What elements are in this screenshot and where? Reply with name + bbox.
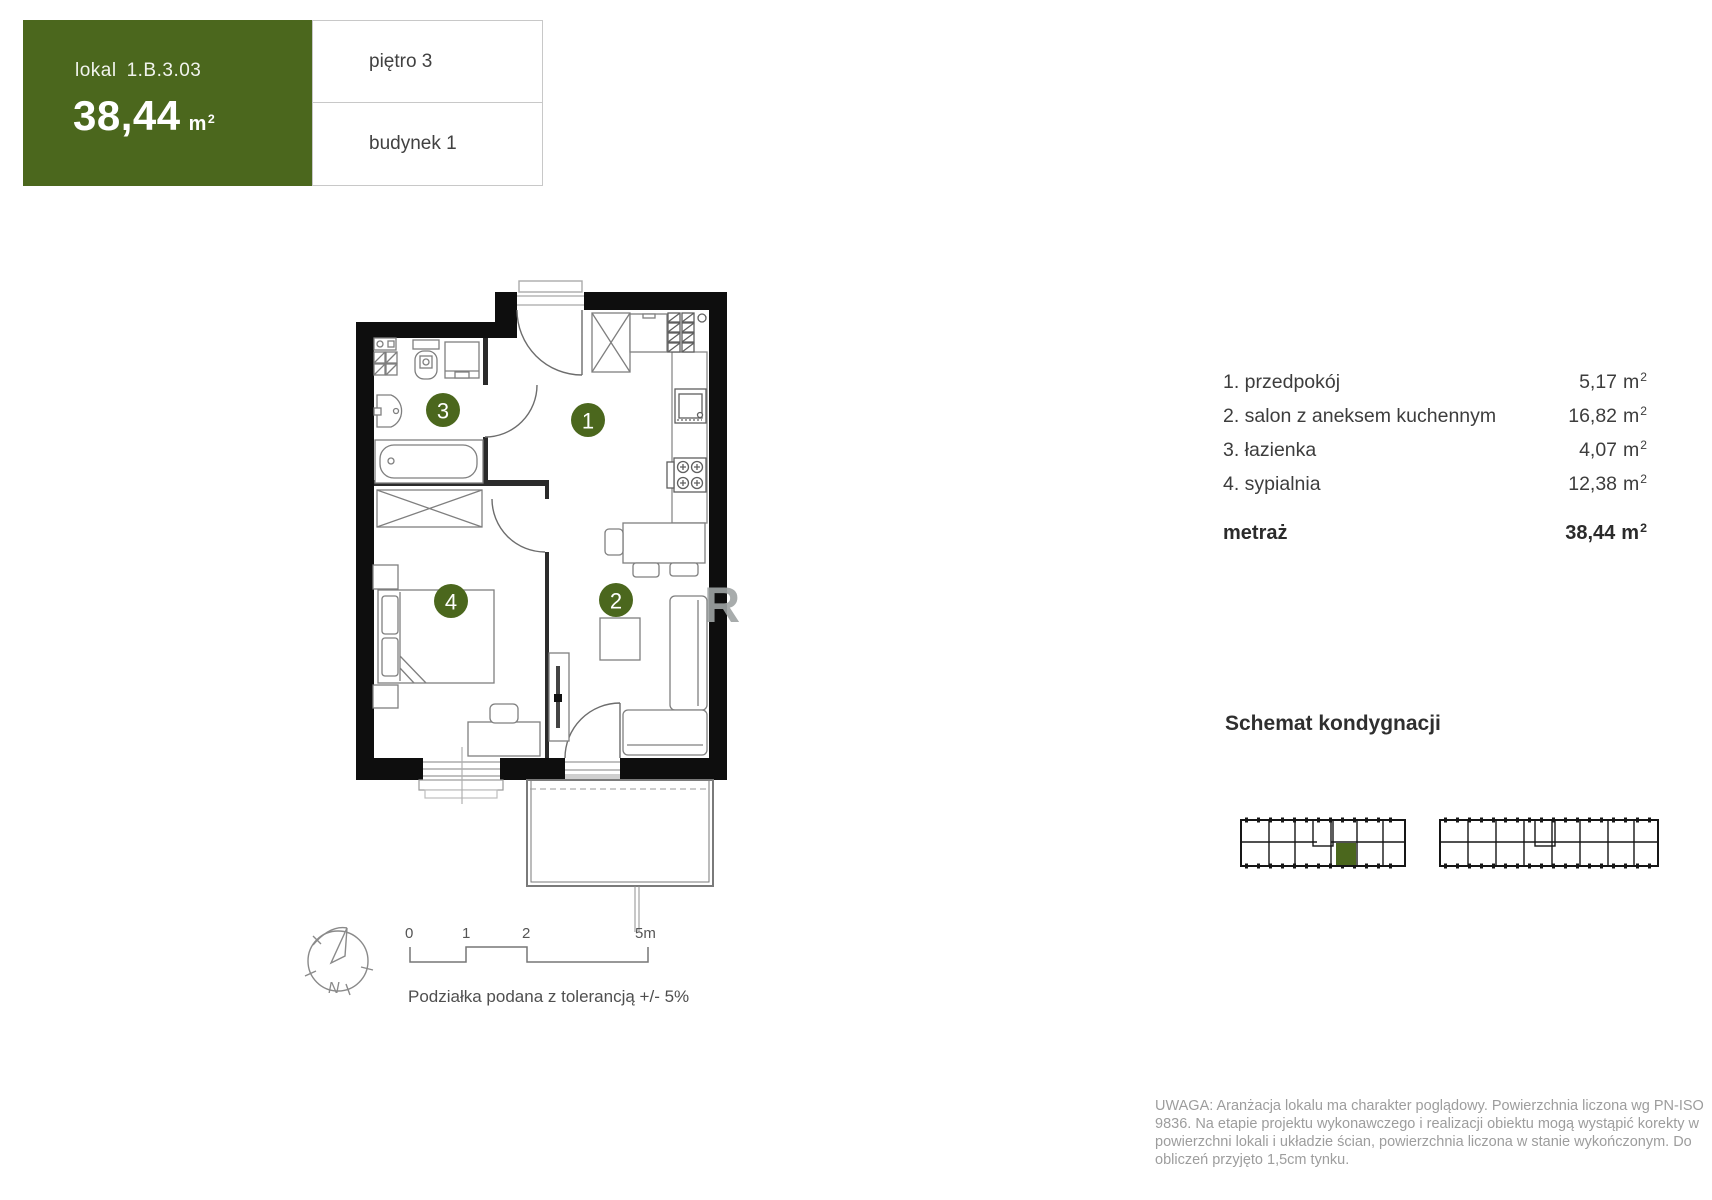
compass-icon: N [305,928,373,997]
room-area: 5,17m2 [1579,371,1647,394]
living-furniture [549,523,707,755]
unit-area-value: 38,44 [73,92,181,139]
bedroom-furniture [373,490,540,756]
scale-5m: 5m [635,925,656,942]
room-list: 1. przedpokój 5,17m2 2. salon z aneksem … [1223,365,1647,501]
unit-exp: 2 [208,112,215,126]
page: lokal1.B.3.03 38,44m2 piętro 3 budynek 1 [0,0,1712,1200]
unit-area: 38,44m2 [73,92,215,140]
scale-2: 2 [522,925,530,942]
total-area-row: metraż 38,44m2 [1223,516,1647,550]
marker-3: 3 [437,399,449,424]
building-1-outline [1241,820,1405,866]
unit-id-line: lokal1.B.3.03 [75,60,201,82]
building-row: budynek 1 [313,103,542,185]
room-row: 4. sypialnia 12,38m2 [1223,467,1647,501]
schematic-title: Schemat kondygnacji [1225,712,1441,736]
scale-caption: Podziałka podana z tolerancją +/- 5% [408,987,689,1007]
floor-plan: 1 2 3 4 R N 0 1 2 5m [300,250,750,1050]
disclaimer-text: UWAGA: Aranżacja lokalu ma charakter pog… [1155,1097,1712,1169]
marker-2: 2 [610,589,622,614]
unit-m: m [189,113,207,135]
total-area: 38,44m2 [1565,522,1647,545]
room-name: 2. salon z aneksem kuchennym [1223,405,1496,428]
marker-1: 1 [582,409,594,434]
unit-header-card: lokal1.B.3.03 38,44m2 [23,20,312,186]
balcony [527,780,713,932]
room-row: 1. przedpokój 5,17m2 [1223,365,1647,399]
compass-n-label: N [328,980,340,997]
room-area: 16,82m2 [1568,405,1647,428]
scale-bar: 0 1 2 5m [405,925,656,962]
unit-id: 1.B.3.03 [127,60,202,81]
floor-label: piętro 3 [369,51,432,73]
watermark-letter: R [704,577,740,633]
marker-4: 4 [445,590,457,615]
building-2-outline [1440,820,1658,866]
floor-row: piętro 3 [313,21,542,103]
building-label: budynek 1 [369,133,457,155]
room-area: 12,38m2 [1568,473,1647,496]
total-label: metraż [1223,522,1287,545]
scale-1: 1 [462,925,470,942]
highlighted-unit [1336,843,1356,865]
room-name: 4. sypialnia [1223,473,1321,496]
unit-label: lokal [75,60,117,81]
room-name: 3. łazienka [1223,439,1316,462]
hallway-furniture [592,313,667,372]
room-area: 4,07m2 [1579,439,1647,462]
scale-0: 0 [405,925,413,942]
floor-schematic [1235,812,1665,876]
room-row: 3. łazienka 4,07m2 [1223,433,1647,467]
room-row: 2. salon z aneksem kuchennym 16,82m2 [1223,399,1647,433]
floor-building-card: piętro 3 budynek 1 [312,20,543,186]
kitchen-fixtures [667,313,707,523]
room-name: 1. przedpokój [1223,371,1340,394]
